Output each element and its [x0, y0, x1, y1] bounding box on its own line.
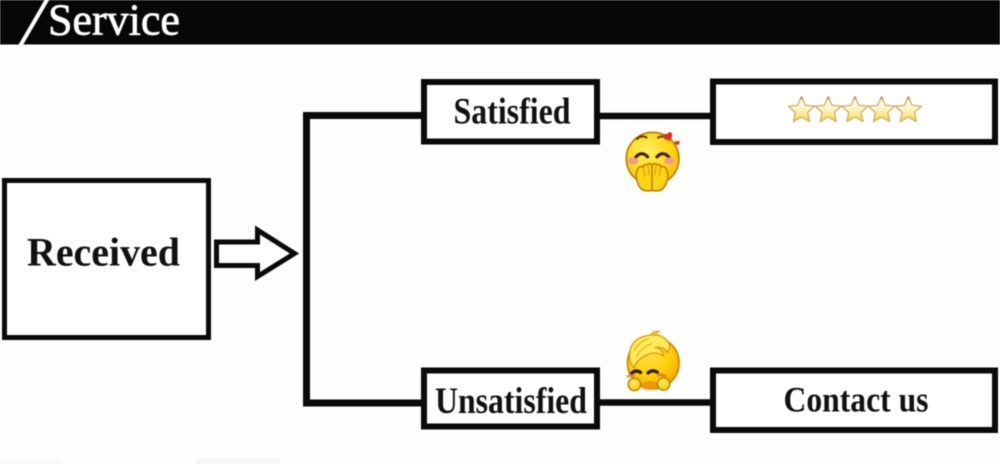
svg-text:Received: Received: [27, 230, 180, 275]
svg-text:Satisfied: Satisfied: [454, 92, 571, 133]
svg-text:Contact us: Contact us: [784, 380, 929, 420]
svg-text:Service: Service: [48, 0, 180, 45]
svg-text:Unsatisfied: Unsatisfied: [435, 381, 587, 422]
